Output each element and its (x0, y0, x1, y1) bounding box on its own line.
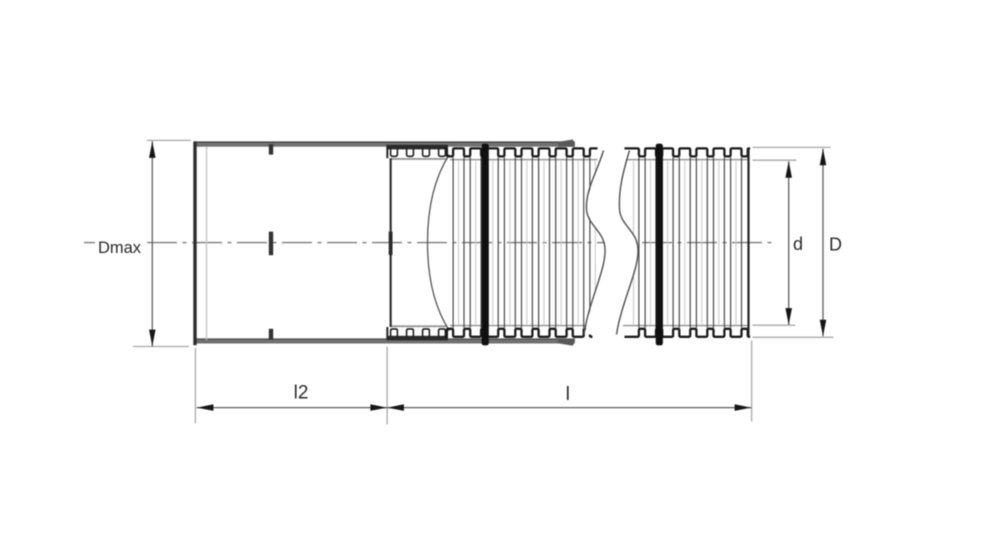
svg-text:Dmax: Dmax (98, 239, 142, 257)
svg-text:D: D (829, 234, 842, 254)
svg-text:d: d (793, 234, 803, 254)
svg-text:l2: l2 (294, 383, 309, 404)
svg-text:l: l (566, 383, 570, 405)
